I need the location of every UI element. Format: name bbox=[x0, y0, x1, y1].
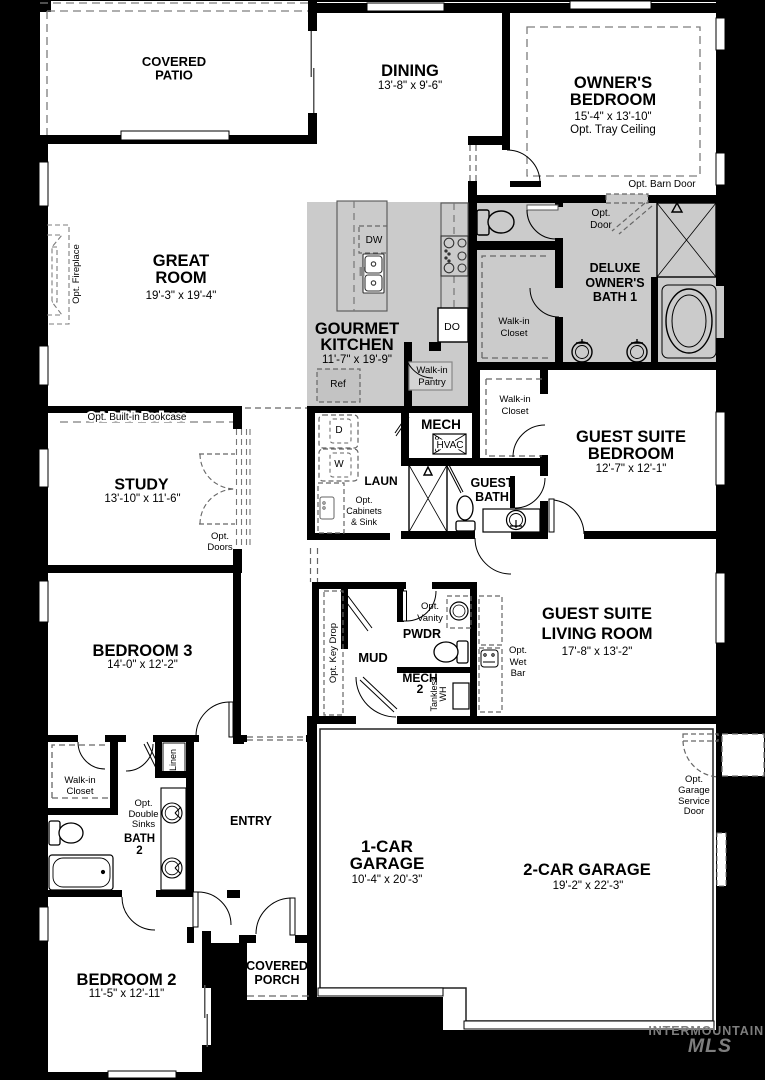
svg-text:ROOM: ROOM bbox=[155, 269, 206, 287]
svg-text:BATH 1: BATH 1 bbox=[593, 290, 637, 304]
svg-text:PWDR: PWDR bbox=[403, 627, 441, 641]
svg-text:13'-8" x 9'-6": 13'-8" x 9'-6" bbox=[378, 80, 442, 92]
svg-text:MECH: MECH bbox=[421, 417, 461, 432]
svg-text:11'-5" x 12'-11": 11'-5" x 12'-11" bbox=[89, 988, 164, 1000]
svg-text:11'-7" x 19'-9": 11'-7" x 19'-9" bbox=[322, 354, 392, 366]
svg-text:& Sink: & Sink bbox=[351, 517, 378, 527]
svg-text:GARAGE: GARAGE bbox=[350, 854, 425, 873]
svg-text:Door: Door bbox=[684, 806, 705, 817]
svg-text:MUD: MUD bbox=[358, 650, 388, 665]
svg-text:Walk-in: Walk-in bbox=[499, 394, 530, 405]
svg-text:Vanity: Vanity bbox=[417, 613, 443, 624]
svg-text:Walk-in: Walk-in bbox=[416, 365, 447, 376]
svg-text:14'-0" x 12'-2": 14'-0" x 12'-2" bbox=[107, 659, 178, 671]
svg-text:2: 2 bbox=[417, 682, 424, 696]
svg-text:Opt. Built-in Bookcase: Opt. Built-in Bookcase bbox=[88, 412, 187, 423]
svg-text:LAUN: LAUN bbox=[364, 474, 397, 488]
svg-text:Wet: Wet bbox=[510, 657, 527, 668]
svg-text:2: 2 bbox=[136, 845, 142, 857]
svg-text:Bar: Bar bbox=[511, 668, 526, 679]
svg-text:HVAC: HVAC bbox=[436, 440, 463, 451]
svg-text:BEDROOM: BEDROOM bbox=[570, 91, 656, 109]
svg-text:BEDROOM: BEDROOM bbox=[588, 445, 674, 463]
svg-text:Opt.: Opt. bbox=[135, 798, 153, 809]
svg-text:STUDY: STUDY bbox=[114, 477, 169, 494]
svg-text:13'-10" x 11'-6": 13'-10" x 11'-6" bbox=[104, 493, 180, 505]
svg-text:Opt. Fireplace: Opt. Fireplace bbox=[71, 244, 82, 304]
svg-text:Walk-in: Walk-in bbox=[498, 316, 529, 327]
svg-text:19'-3" x 19'-4": 19'-3" x 19'-4" bbox=[146, 290, 217, 302]
svg-text:DINING: DINING bbox=[381, 62, 439, 80]
svg-text:COVERED: COVERED bbox=[246, 959, 308, 973]
svg-text:2-CAR GARAGE: 2-CAR GARAGE bbox=[523, 861, 650, 879]
svg-text:LIVING ROOM: LIVING ROOM bbox=[542, 625, 653, 643]
svg-text:BEDROOM 2: BEDROOM 2 bbox=[77, 971, 177, 989]
svg-text:DELUXE: DELUXE bbox=[590, 261, 641, 275]
svg-text:Opt.: Opt. bbox=[421, 601, 439, 612]
svg-text:W: W bbox=[334, 459, 344, 470]
svg-text:GUEST: GUEST bbox=[470, 476, 513, 490]
svg-text:Closet: Closet bbox=[67, 786, 94, 797]
svg-text:GREAT: GREAT bbox=[153, 252, 210, 270]
svg-text:Opt. Key Drop: Opt. Key Drop bbox=[328, 623, 339, 683]
svg-text:PATIO: PATIO bbox=[155, 68, 193, 83]
svg-text:Linen: Linen bbox=[168, 749, 178, 771]
svg-text:ENTRY: ENTRY bbox=[230, 814, 273, 828]
svg-text:Ref: Ref bbox=[330, 379, 346, 390]
svg-text:Closet: Closet bbox=[502, 406, 529, 417]
svg-text:GUEST SUITE: GUEST SUITE bbox=[542, 605, 652, 623]
svg-text:Cabinets: Cabinets bbox=[346, 506, 382, 516]
svg-text:12'-7" x 12'-1": 12'-7" x 12'-1" bbox=[596, 463, 667, 475]
svg-text:Opt.: Opt. bbox=[592, 208, 611, 219]
svg-text:Closet: Closet bbox=[501, 328, 528, 339]
svg-text:Pantry: Pantry bbox=[418, 377, 446, 388]
svg-text:D: D bbox=[335, 425, 342, 436]
svg-text:Doors: Doors bbox=[207, 542, 233, 553]
svg-text:MLS: MLS bbox=[688, 1035, 732, 1057]
svg-text:15'-4" x 13'-10": 15'-4" x 13'-10" bbox=[574, 111, 651, 123]
svg-text:17'-8" x 13'-2": 17'-8" x 13'-2" bbox=[562, 646, 633, 658]
svg-text:DO: DO bbox=[444, 321, 460, 333]
svg-text:BATH: BATH bbox=[475, 490, 509, 504]
svg-text:Door: Door bbox=[590, 220, 612, 231]
svg-text:OWNER'S: OWNER'S bbox=[585, 276, 644, 290]
svg-text:19'-2" x 22'-3": 19'-2" x 22'-3" bbox=[553, 880, 624, 892]
svg-text:WH: WH bbox=[438, 687, 448, 702]
svg-text:OWNER'S: OWNER'S bbox=[574, 74, 652, 92]
svg-text:Opt.: Opt. bbox=[509, 645, 527, 656]
svg-text:Opt.: Opt. bbox=[685, 774, 703, 785]
svg-text:Opt.: Opt. bbox=[211, 531, 229, 542]
svg-text:Garage: Garage bbox=[678, 785, 710, 796]
svg-text:Walk-in: Walk-in bbox=[64, 775, 95, 786]
svg-text:Opt. Tray Ceiling: Opt. Tray Ceiling bbox=[570, 124, 656, 136]
svg-text:BEDROOM 3: BEDROOM 3 bbox=[93, 642, 193, 660]
svg-text:10'-4" x 20'-3": 10'-4" x 20'-3" bbox=[352, 874, 423, 886]
svg-text:Opt.: Opt. bbox=[355, 495, 372, 505]
svg-text:BATH: BATH bbox=[124, 833, 155, 845]
svg-text:DW: DW bbox=[366, 235, 383, 246]
svg-text:PORCH: PORCH bbox=[254, 973, 299, 987]
svg-text:Sinks: Sinks bbox=[132, 819, 155, 830]
svg-text:GUEST SUITE: GUEST SUITE bbox=[576, 428, 686, 446]
svg-text:Opt. Barn Door: Opt. Barn Door bbox=[628, 179, 696, 190]
svg-text:KITCHEN: KITCHEN bbox=[320, 336, 393, 354]
